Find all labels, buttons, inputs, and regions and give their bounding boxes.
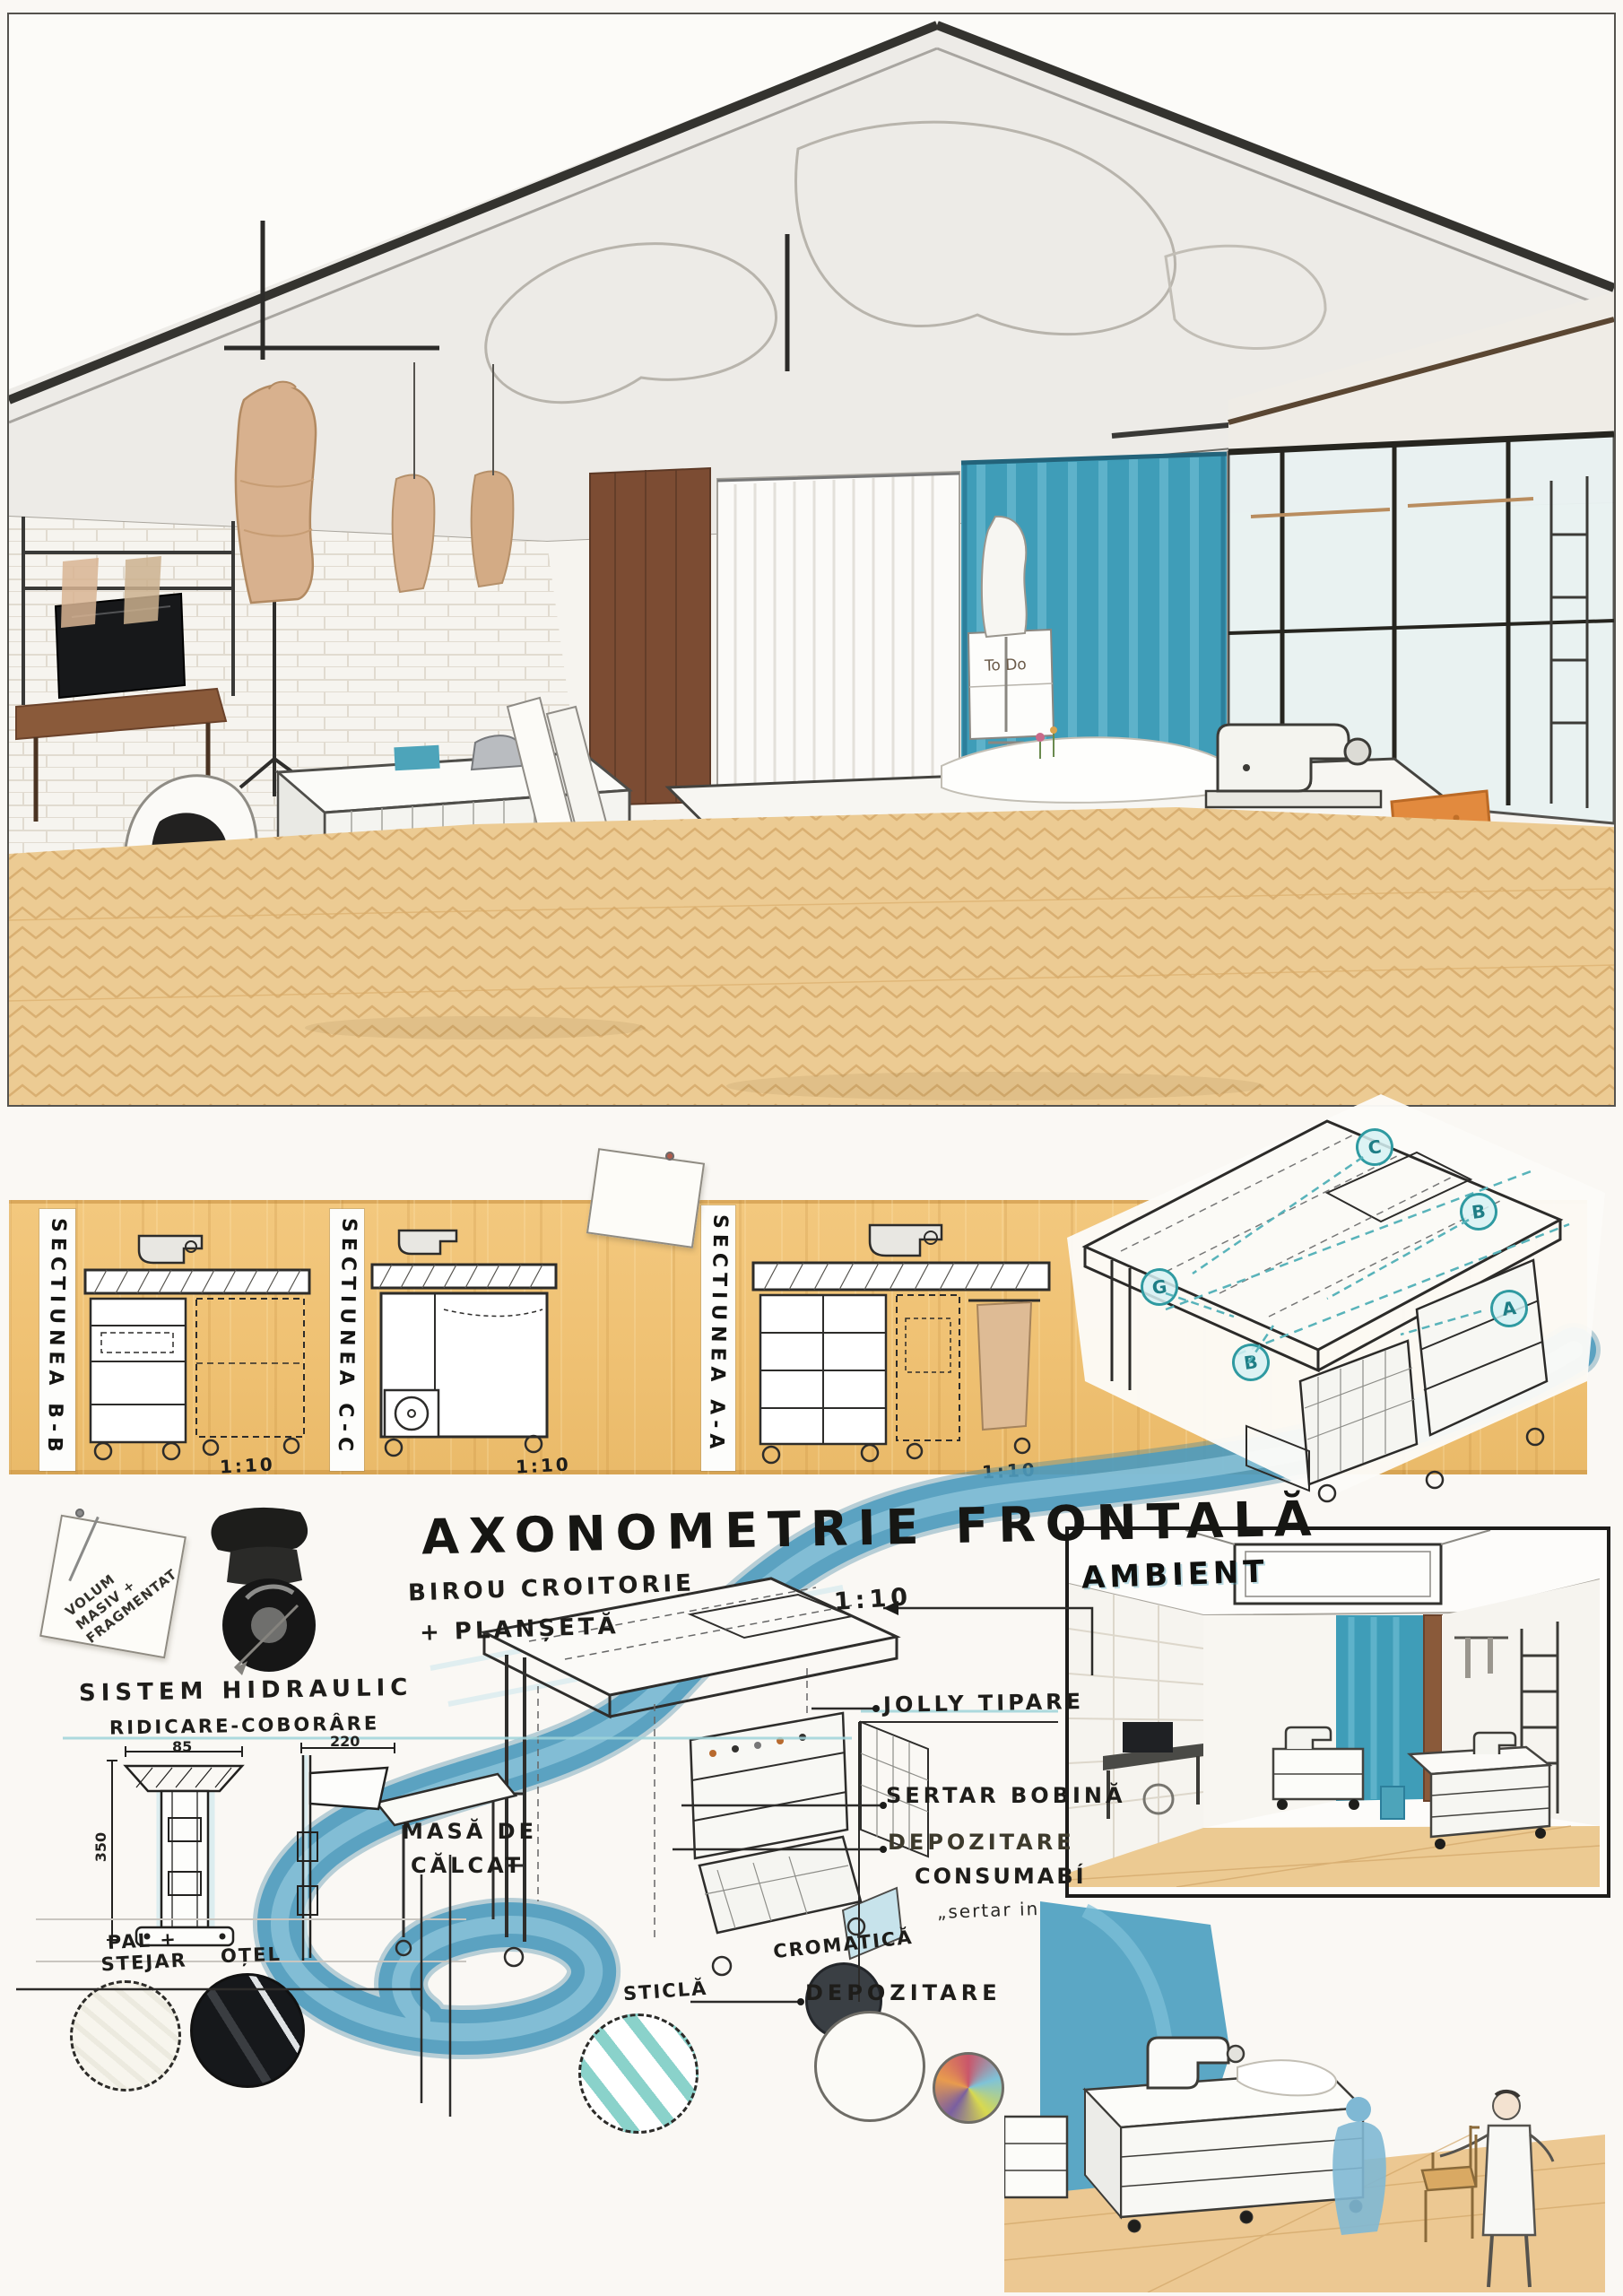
pinned-paper-note	[586, 1148, 705, 1248]
swatch-cromatica-light	[814, 2011, 925, 2122]
caster-wheel-sketch	[184, 1500, 354, 1692]
small-mannequin	[982, 517, 1027, 637]
section-label-strip-bb: SECTIUNEA B-B	[39, 1209, 75, 1471]
detail-dim-width1: 85	[172, 1738, 192, 1755]
dress-form-mannequin	[236, 385, 316, 603]
annotation-sertar-bobina: SERTAR BOBINĂ	[886, 1783, 1126, 1808]
section-cc-label: SECTIUNEA C-C	[328, 1209, 366, 1466]
workshop-perspective-sketch	[9, 14, 1614, 1105]
section-bb-scale: 1:10	[219, 1453, 275, 1477]
material-label-otel: OȚEL	[221, 1944, 282, 1967]
section-label-strip-aa: SECTIUNEA A-A	[701, 1205, 735, 1471]
annotation-depozitare-line2: CONSUMABÍ	[915, 1864, 1087, 1889]
swatch-cromatica-multi	[933, 2052, 1004, 2124]
section-aa-scale: 1:10	[981, 1458, 1037, 1483]
bottom-vignette-sketch	[1004, 1901, 1605, 2292]
section-label-strip-cc: SECTIUNEA C-C	[330, 1209, 364, 1471]
main-perspective-drawing: To Do	[7, 13, 1616, 1107]
material-label-pal: PAL + STEJAR	[100, 1928, 187, 1976]
iron-sketch	[472, 735, 522, 770]
detail-dim-width2: 220	[330, 1733, 360, 1750]
todo-poster-text: To Do	[985, 656, 1027, 675]
annotation-depozitare-bottom: DEPOZITARE	[805, 1980, 1002, 2005]
paper-pin	[665, 1152, 674, 1161]
section-cc-scale: 1:10	[515, 1453, 571, 1477]
annotation-depozitare-line1: DEPOZITARE	[888, 1830, 1075, 1855]
presentation-board: To Do	[0, 0, 1623, 2296]
annotation-masa-line1: MASĂ DE	[402, 1819, 537, 1844]
swatch-pal-stejar	[70, 1980, 181, 2092]
sticky-pin	[75, 1509, 84, 1518]
section-bb-label: SECTIUNEA B-B	[37, 1209, 74, 1466]
axo-scale: 1:10	[833, 1583, 913, 1616]
annotation-jolly: JOLLY TIPARE	[883, 1689, 1085, 1718]
ambient-label: AMBIENT	[1081, 1553, 1269, 1596]
swatch-otel	[190, 1973, 305, 2088]
swatch-sticla	[578, 2013, 699, 2134]
sticky-note: VOLUM MASIV + FRAGMENTAT	[39, 1515, 187, 1659]
section-aa-label: SECTIUNEA A-A	[699, 1205, 736, 1464]
annotation-sertar-in: „sertar in	[937, 1898, 1040, 1923]
detail-dim-height1: 350	[92, 1832, 109, 1862]
annotation-masa-line2: CĂLCAT	[411, 1853, 524, 1878]
